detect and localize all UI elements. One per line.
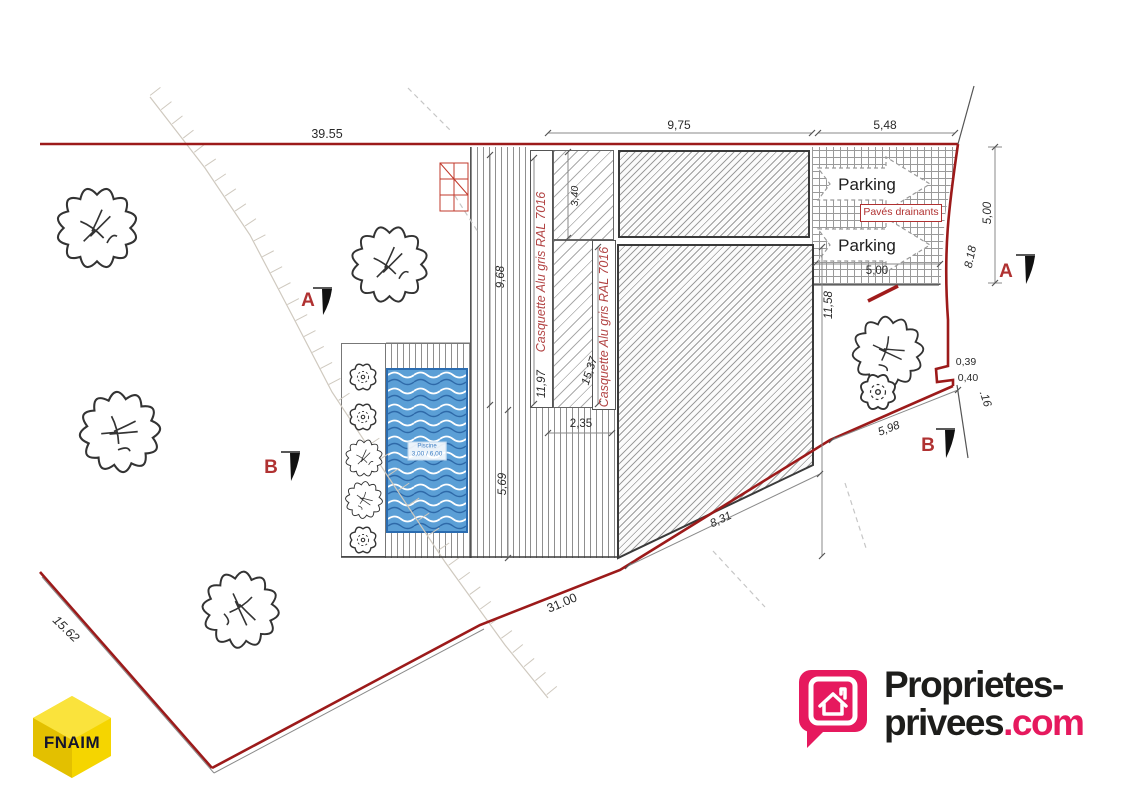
dim-11-58: 11,58	[823, 291, 835, 319]
dim-9-75: 9,75	[667, 118, 690, 132]
planter-bed	[341, 343, 386, 557]
pp-house-icon	[799, 670, 867, 748]
casquette-note-left: Casquette Alu gris RAL 7016	[534, 192, 548, 353]
site-plan: Piscine 3,00 / 6,00	[0, 0, 1131, 800]
dim-9-68: 9,68	[495, 266, 507, 288]
section-marker-b-right: B	[921, 435, 935, 457]
dim-11-97: 11,97	[536, 370, 548, 398]
ladder-symbol-icon	[440, 163, 468, 211]
wood-deck-lower	[530, 408, 617, 558]
section-marker-a-left: A	[301, 290, 315, 312]
swimming-pool: Piscine 3,00 / 6,00	[386, 368, 468, 533]
pp-logo-line2: privees.com	[884, 704, 1083, 742]
pool-name: Piscine	[412, 443, 443, 450]
parking-label-2: Parking	[838, 236, 896, 256]
paves-drainants-label: Pavés drainants	[860, 204, 942, 222]
dim-0-39: 0,39	[956, 356, 976, 368]
fnaim-logo-text: FNAIM	[44, 733, 100, 752]
building-upper-block	[618, 150, 810, 238]
pool-label: Piscine 3,00 / 6,00	[408, 441, 447, 460]
dim-2-35: 2,35	[570, 418, 592, 430]
access-line	[868, 286, 898, 301]
dim-5-48: 5,48	[873, 118, 896, 132]
pp-logo-com: .com	[1003, 702, 1083, 743]
fnaim-logo: FNAIM	[33, 696, 111, 778]
boundary-parallel-lines	[42, 577, 484, 773]
dim-5-00-parking: 5,00	[866, 265, 888, 277]
casquette-note-right: Casquette Alu gris RAL 7016	[597, 247, 611, 408]
pool-size: 3,00 / 6,00	[412, 450, 443, 458]
building-main-block	[618, 245, 813, 558]
parking-label-1: Parking	[838, 175, 896, 195]
dim-5-69: 5,69	[497, 473, 509, 495]
dim-5-00-right: 5,00	[982, 202, 994, 224]
dim-8-18: 8.18	[963, 245, 979, 269]
boundary-extension-lines	[957, 86, 974, 458]
pp-logo-text: Proprietes- privees.com	[884, 666, 1083, 742]
dim-0-40: 0,40	[958, 372, 978, 384]
dim-point-16: .16	[977, 390, 993, 409]
dim-31-00: 31.00	[545, 590, 579, 615]
dim-8-31: 8,31	[708, 510, 733, 530]
pp-logo-line1: Proprietes-	[884, 666, 1083, 704]
casquette-roof-upper	[553, 150, 614, 240]
dim-3-40: 3,40	[569, 186, 581, 206]
section-marker-b-left: B	[264, 457, 278, 479]
wood-deck-strip	[470, 147, 530, 558]
dim-5-98: 5,98	[876, 419, 901, 438]
section-marker-a-right: A	[999, 261, 1013, 283]
dim-15-62: 15.62	[50, 613, 82, 645]
dim-39-55: 39.55	[311, 127, 342, 141]
